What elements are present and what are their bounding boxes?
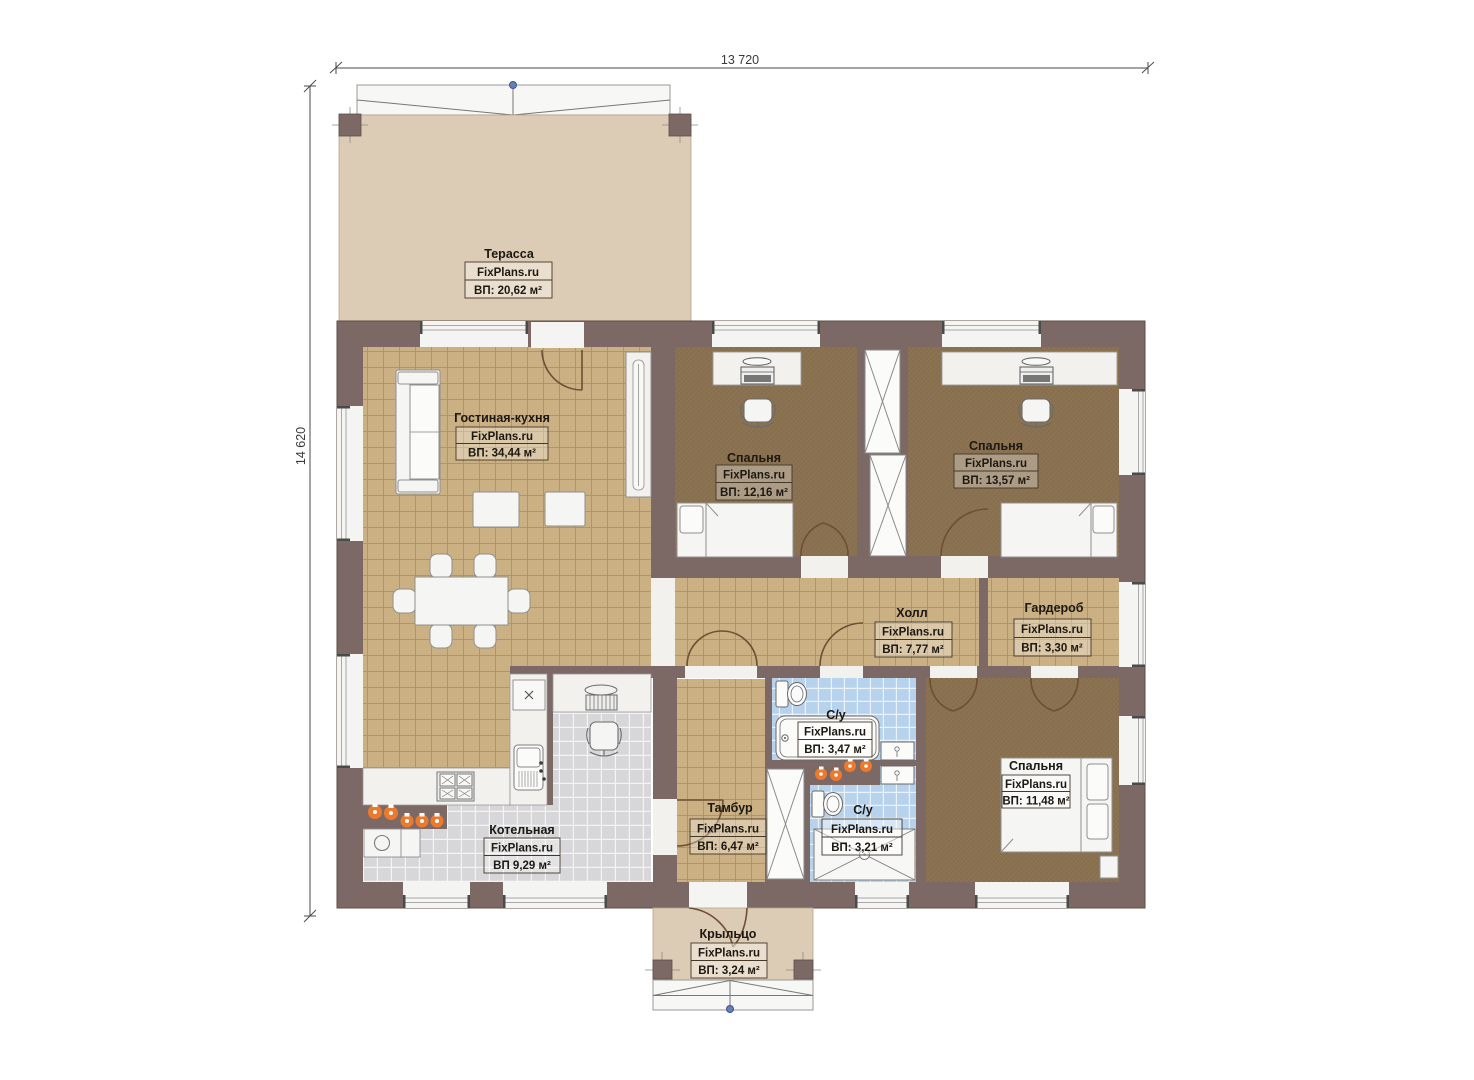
svg-text:ВП: 3,21 м²: ВП: 3,21 м² — [831, 842, 893, 854]
svg-text:Спальня: Спальня — [969, 439, 1023, 453]
svg-text:FixPlans.ru: FixPlans.ru — [477, 267, 539, 279]
svg-text:Спальня: Спальня — [727, 451, 781, 465]
svg-text:FixPlans.ru: FixPlans.ru — [698, 948, 760, 960]
svg-text:ВП: 3,30 м²: ВП: 3,30 м² — [1021, 643, 1083, 655]
svg-text:ВП: 6,47 м²: ВП: 6,47 м² — [697, 841, 759, 853]
svg-text:13 720: 13 720 — [721, 53, 759, 67]
svg-text:FixPlans.ru: FixPlans.ru — [831, 824, 893, 836]
svg-text:ВП: 12,16 м²: ВП: 12,16 м² — [720, 487, 788, 499]
svg-text:Терасса: Терасса — [484, 247, 535, 261]
svg-text:Крыльцо: Крыльцо — [700, 927, 757, 941]
svg-text:ВП: 34,44 м²: ВП: 34,44 м² — [468, 448, 536, 460]
svg-text:Гостиная-кухня: Гостиная-кухня — [454, 411, 550, 425]
svg-text:FixPlans.ru: FixPlans.ru — [882, 627, 944, 639]
svg-text:FixPlans.ru: FixPlans.ru — [965, 458, 1027, 470]
svg-text:FixPlans.ru: FixPlans.ru — [723, 470, 785, 482]
svg-text:Котельная: Котельная — [489, 823, 554, 837]
svg-text:ВП: 13,57 м²: ВП: 13,57 м² — [962, 475, 1030, 487]
svg-text:FixPlans.ru: FixPlans.ru — [491, 843, 553, 855]
svg-text:ВП: 3,47 м²: ВП: 3,47 м² — [804, 744, 866, 756]
svg-text:ВП: 7,77 м²: ВП: 7,77 м² — [882, 644, 944, 656]
svg-text:Гардероб: Гардероб — [1024, 601, 1083, 615]
svg-text:FixPlans.ru: FixPlans.ru — [471, 431, 533, 443]
svg-text:С/у: С/у — [826, 708, 846, 722]
svg-text:Спальня: Спальня — [1009, 759, 1063, 773]
svg-text:FixPlans.ru: FixPlans.ru — [1005, 779, 1067, 791]
svg-text:Холл: Холл — [896, 606, 927, 620]
svg-text:14 620: 14 620 — [294, 427, 308, 465]
svg-text:С/у: С/у — [853, 803, 873, 817]
svg-text:ВП: 11,48 м²: ВП: 11,48 м² — [1002, 796, 1069, 808]
svg-text:ВП: 20,62 м²: ВП: 20,62 м² — [474, 285, 542, 297]
svg-text:ВП: 3,24 м²: ВП: 3,24 м² — [698, 965, 760, 977]
svg-text:FixPlans.ru: FixPlans.ru — [1021, 624, 1083, 636]
svg-text:FixPlans.ru: FixPlans.ru — [804, 727, 866, 739]
svg-text:Тамбур: Тамбур — [707, 801, 753, 815]
svg-text:FixPlans.ru: FixPlans.ru — [697, 824, 759, 836]
svg-text:ВП 9,29 м²: ВП 9,29 м² — [493, 860, 551, 872]
